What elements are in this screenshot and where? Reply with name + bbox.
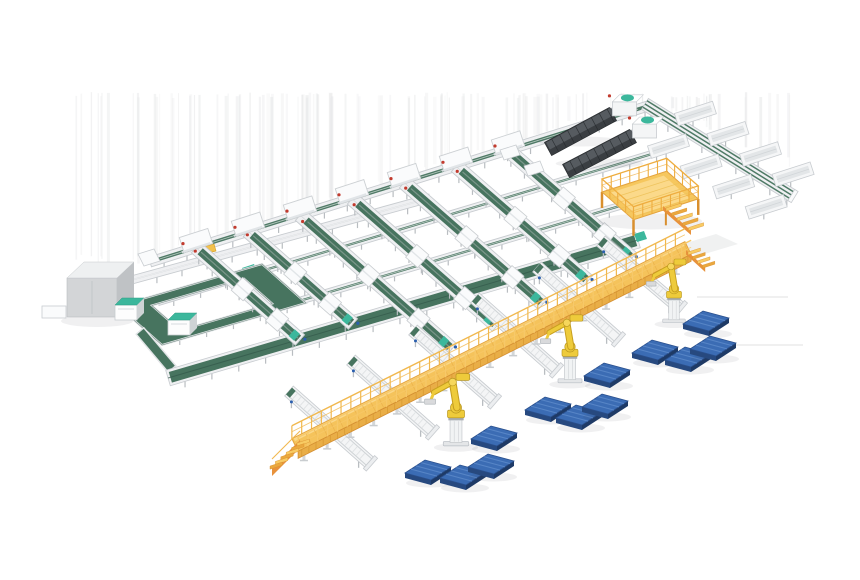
teal-machine [168,313,197,335]
trough-conveyor [713,174,755,199]
trough-conveyor [745,195,787,220]
pallet [582,394,631,422]
render-canvas [0,0,860,580]
pallet [471,426,520,454]
trough-conveyor [772,162,814,187]
pallet [683,311,732,339]
trough-conveyor [707,122,749,147]
pallet [690,336,739,364]
teal-machine [115,298,144,320]
pallet [584,363,633,391]
dock-module [42,306,66,318]
pallet [468,454,517,482]
facility-render [0,0,860,580]
